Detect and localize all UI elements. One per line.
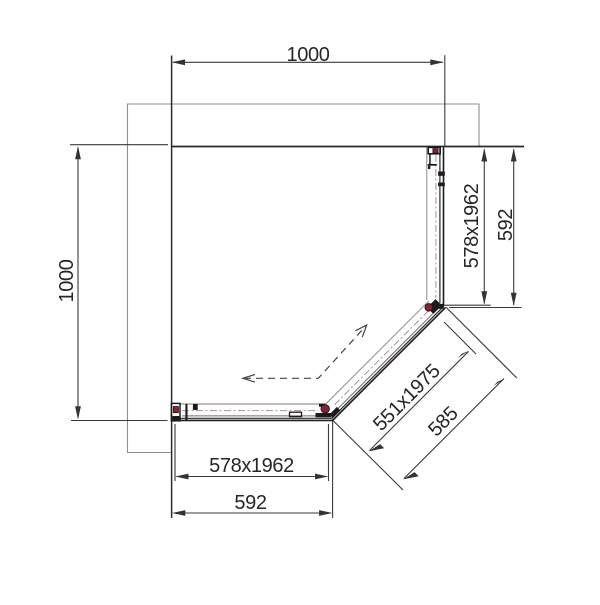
svg-text:578x1962: 578x1962 — [461, 183, 483, 268]
svg-text:578x1962: 578x1962 — [209, 455, 294, 477]
svg-text:1000: 1000 — [56, 259, 78, 302]
svg-text:1000: 1000 — [287, 44, 330, 66]
svg-text:592: 592 — [234, 492, 266, 514]
svg-text:592: 592 — [495, 209, 517, 241]
